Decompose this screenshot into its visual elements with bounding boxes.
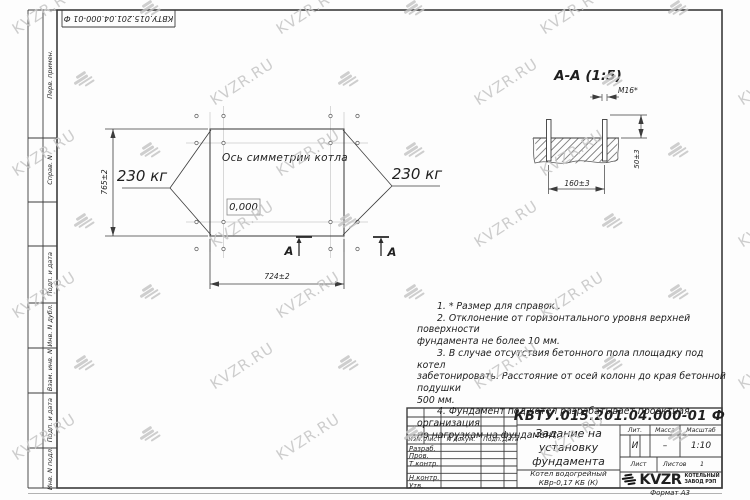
lit-value: И: [620, 435, 650, 457]
section-dim-protrusion: 50±3: [631, 137, 643, 181]
header-data: Дата: [504, 435, 517, 444]
header-n-dokum: N докум.: [441, 435, 481, 444]
plan-section-letter-right: А: [386, 245, 398, 259]
drawing-sheet: Перв. примен. Справ. N Подп. и дата Инв.…: [0, 0, 750, 500]
note-line: 2. Отклонение от горизонтального уровня …: [417, 313, 731, 336]
logo-text: KVZR: [639, 472, 681, 488]
note-line: 500 мм.: [417, 395, 731, 407]
note-line: фундамента не более 10 мм.: [417, 336, 731, 348]
section-bolt-thread-label: М16*: [618, 86, 638, 95]
header-massa: Масса: [650, 425, 680, 435]
note-line: 3. В случае отсутствия бетонного пола пл…: [417, 348, 731, 371]
header-izm: Изм.: [407, 435, 424, 444]
sheets-label: Листов: [663, 461, 687, 468]
header-podp: Подп.: [481, 435, 504, 444]
section-title: А-А (1:5): [543, 68, 633, 84]
plan-section-letter-left: А: [283, 244, 295, 258]
title-block-product-name: Котел водогрейный КВр-0,17 КБ (К): [517, 470, 620, 488]
header-lit: Лит.: [620, 425, 650, 435]
scale-value: 1:10: [680, 435, 722, 457]
doc-number-rotated: КВТУ.015.201.04.000-01 Ф: [62, 10, 175, 27]
plan-symmetry-axis-label: Ось симметрии котла: [220, 151, 350, 165]
anchor-bolts: [195, 114, 359, 250]
note-line: 1. * Размер для справок .: [417, 301, 731, 313]
company-logo: KVZR КОТЕЛЬНЫЙ ЗАВОД РЭП: [620, 472, 722, 488]
massa-value: –: [650, 435, 680, 457]
section-cut-marks: [296, 237, 389, 256]
logo-subtitle: КОТЕЛЬНЫЙ ЗАВОД РЭП: [684, 474, 719, 485]
margin-field-podp-data-1: Подп. и дата: [43, 246, 57, 303]
plan-linework: [105, 106, 440, 289]
section-dim-spacing: 160±3: [555, 178, 599, 188]
margin-field-vzam-inv: Взам. инв. N: [43, 348, 57, 393]
row-tkontr: Т.контр.: [409, 460, 438, 468]
kvzr-logo-icon: [622, 473, 638, 487]
header-masshtab: Масштаб: [680, 425, 722, 435]
margin-field-sprav-n: Справ. N: [43, 138, 57, 202]
plan-load-right-label: 230 кг: [388, 165, 446, 183]
plan-dim-width: 724±2: [255, 271, 299, 282]
margin-field-podp-data-2: Подп. и дата: [43, 393, 57, 448]
note-line: забетонировать. Расстояние от осей колон…: [417, 371, 731, 394]
plan-load-left-label: 230 кг: [113, 167, 171, 185]
sheet-label: Лист: [620, 457, 657, 472]
title-block-doc-number: КВТУ.015.201.04.000-01 Ф: [517, 408, 722, 425]
plan-level-mark: 0,000: [227, 199, 260, 215]
sheets-count: 1: [700, 461, 704, 468]
plan-dim-height: 765±2: [98, 160, 110, 204]
margin-field-perv-primen: Перв. примен.: [43, 10, 57, 138]
format-label: Формат А3: [630, 489, 710, 498]
margin-field-inv-dubl: Инв. N дубл.: [43, 303, 57, 348]
title-block-document-title: Задание на установку фундамента: [517, 425, 620, 470]
header-list: Лист: [424, 435, 441, 444]
row-utv: Утв.: [409, 482, 423, 490]
margin-field-inv-podl: Инв. N подл.: [43, 448, 57, 488]
